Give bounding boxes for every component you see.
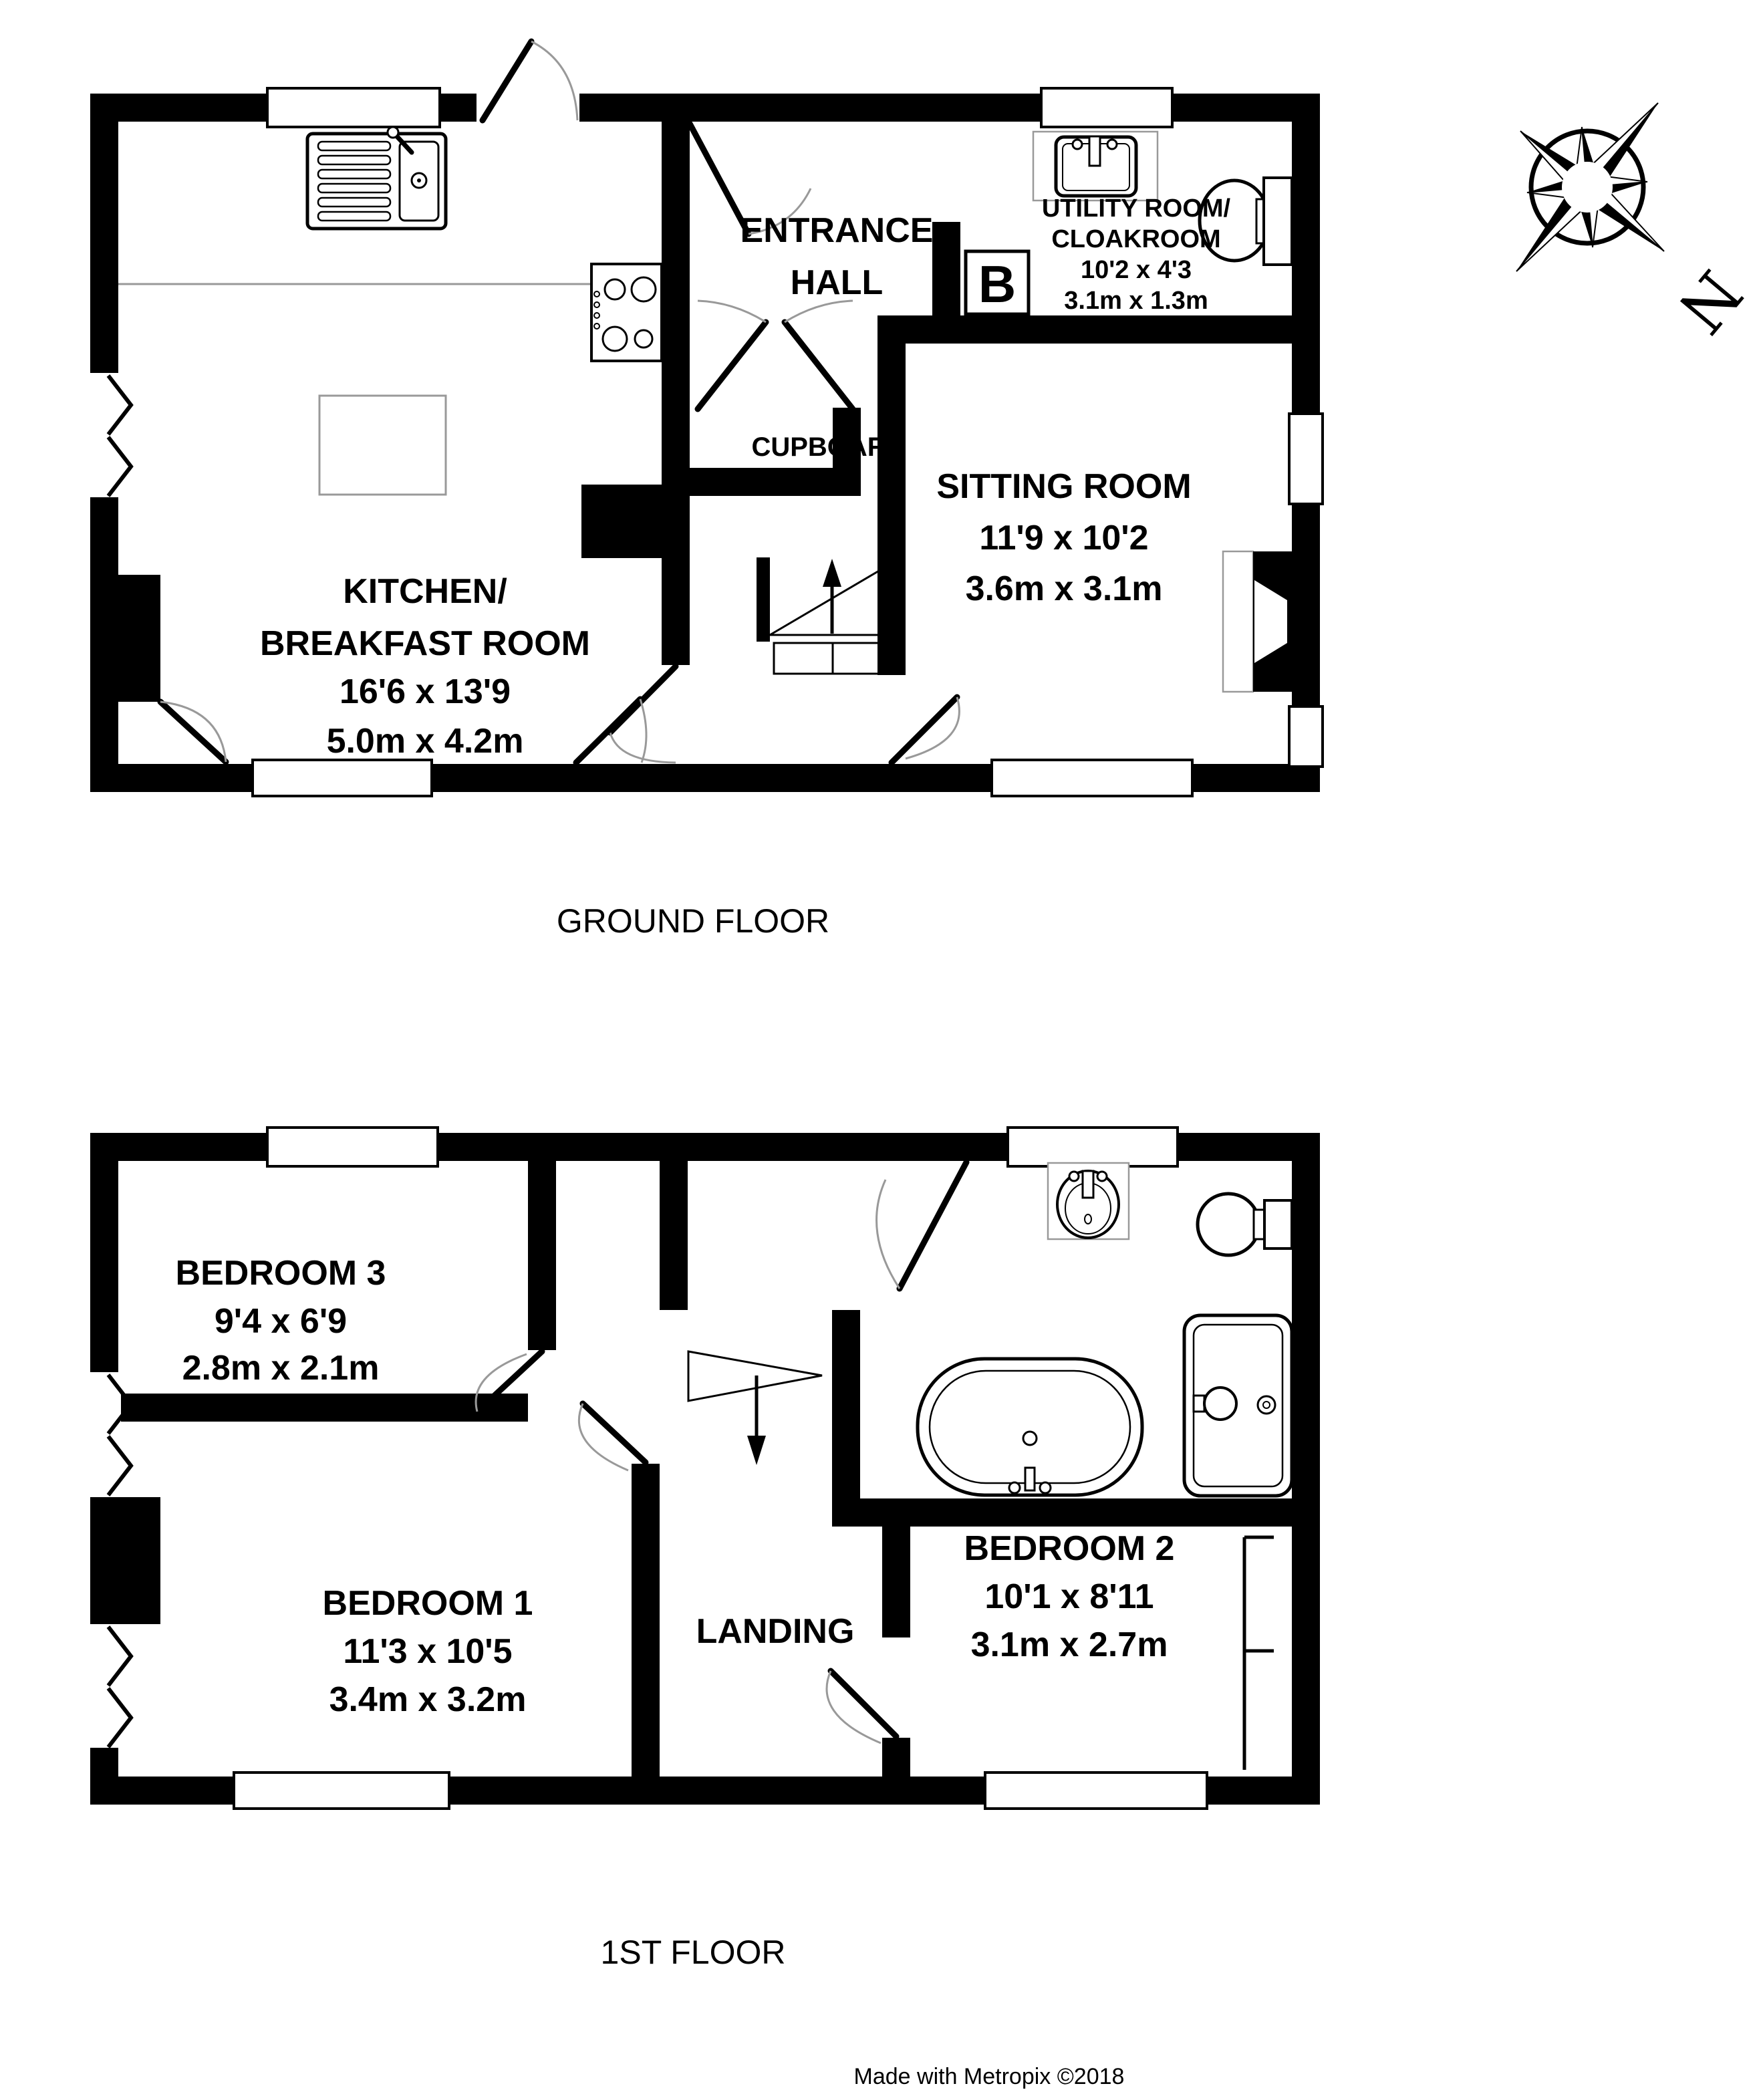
kitchen-dims: 5.0m x 4.2m bbox=[327, 722, 524, 761]
fireplace bbox=[1223, 551, 1292, 692]
window bbox=[992, 760, 1192, 796]
bathroom-sink bbox=[1048, 1163, 1129, 1239]
sitting-room-dims: 3.6m x 3.1m bbox=[966, 569, 1163, 608]
compass-rose-icon: N bbox=[1516, 103, 1755, 346]
utility-label: CLOAKROOM bbox=[1051, 225, 1220, 253]
hob bbox=[591, 264, 662, 361]
bath bbox=[918, 1359, 1142, 1495]
boiler-label: B bbox=[978, 255, 1016, 313]
bedroom1-dims: 11'3 x 10'5 bbox=[343, 1632, 512, 1671]
window bbox=[234, 1773, 449, 1809]
kitchen-island bbox=[319, 396, 446, 495]
kitchen-label: KITCHEN/ bbox=[343, 572, 507, 611]
bathroom-door bbox=[900, 1162, 966, 1289]
boiler-box: B bbox=[966, 251, 1029, 314]
bedroom2-label: BEDROOM 2 bbox=[964, 1529, 1175, 1568]
stairs-down-arrow bbox=[747, 1436, 766, 1465]
floorplan-page: B KITCHEN/ BREAKFAST ROOM 16'6 x 13'9 5.… bbox=[0, 0, 1759, 2100]
kitchen-chimney-block bbox=[581, 485, 662, 558]
bedroom1-label: BEDROOM 1 bbox=[323, 1584, 533, 1623]
window bbox=[253, 760, 432, 796]
bedroom2-door bbox=[831, 1671, 896, 1736]
bedroom3-dims: 9'4 x 6'9 bbox=[215, 1302, 347, 1341]
sitting-room-dims: 11'9 x 10'2 bbox=[979, 519, 1148, 557]
window bbox=[1041, 88, 1172, 127]
first-floor-plan: BEDROOM 3 9'4 x 6'9 2.8m x 2.1m BEDROOM … bbox=[88, 1128, 1320, 1971]
window bbox=[1008, 1128, 1178, 1166]
cupboard-door bbox=[785, 322, 853, 409]
sitting-room-label: SITTING ROOM bbox=[936, 467, 1191, 506]
utility-sink bbox=[1033, 132, 1158, 201]
entrance-hall-label: ENTRANCE bbox=[740, 211, 934, 250]
bedroom3-dims: 2.8m x 2.1m bbox=[182, 1349, 380, 1388]
bedroom3-label: BEDROOM 3 bbox=[176, 1254, 386, 1293]
credit-text: Made with Metropix ©2018 bbox=[854, 2064, 1125, 2089]
bedroom1-dims: 3.4m x 3.2m bbox=[329, 1680, 527, 1719]
chimney-breast bbox=[90, 1497, 160, 1624]
chimney-breast bbox=[90, 575, 160, 702]
bedroom1-door bbox=[583, 1404, 646, 1462]
kitchen-sink bbox=[307, 127, 446, 229]
cupboard-door bbox=[698, 322, 766, 409]
window bbox=[1289, 706, 1323, 767]
first-floor-caption: 1ST FLOOR bbox=[601, 1934, 786, 1971]
bedroom2-wardrobe bbox=[1244, 1537, 1274, 1770]
entrance-hall-label: HALL bbox=[791, 263, 884, 302]
stairs-down bbox=[688, 1351, 822, 1465]
utility-dims: 10'2 x 4'3 bbox=[1081, 256, 1192, 284]
kitchen-label: BREAKFAST ROOM bbox=[260, 624, 590, 663]
window bbox=[1289, 414, 1323, 504]
kitchen-counter bbox=[118, 284, 590, 495]
window bbox=[267, 88, 440, 127]
kitchen-dims: 16'6 x 13'9 bbox=[340, 672, 511, 711]
utility-label: UTILITY ROOM/ bbox=[1042, 194, 1231, 223]
utility-dims: 3.1m x 1.3m bbox=[1064, 287, 1208, 315]
bedroom2-dims: 3.1m x 2.7m bbox=[971, 1625, 1168, 1664]
toilet bbox=[1198, 1194, 1292, 1255]
first-walls bbox=[88, 1133, 1320, 1805]
ground-floor-plan: B KITCHEN/ BREAKFAST ROOM 16'6 x 13'9 5.… bbox=[88, 41, 1323, 940]
stairs-up bbox=[770, 559, 892, 674]
ground-floor-caption: GROUND FLOOR bbox=[557, 902, 829, 940]
window bbox=[267, 1128, 438, 1166]
bedroom2-dims: 10'1 x 8'11 bbox=[984, 1577, 1154, 1616]
compass-north-label: N bbox=[1663, 256, 1756, 346]
corridor-door bbox=[576, 699, 640, 763]
shower bbox=[1184, 1315, 1292, 1496]
stairs-up-arrow bbox=[823, 559, 841, 587]
window bbox=[985, 1773, 1207, 1809]
landing-label: LANDING bbox=[696, 1612, 855, 1651]
cupboard-label: CUPBOARD bbox=[751, 432, 906, 462]
